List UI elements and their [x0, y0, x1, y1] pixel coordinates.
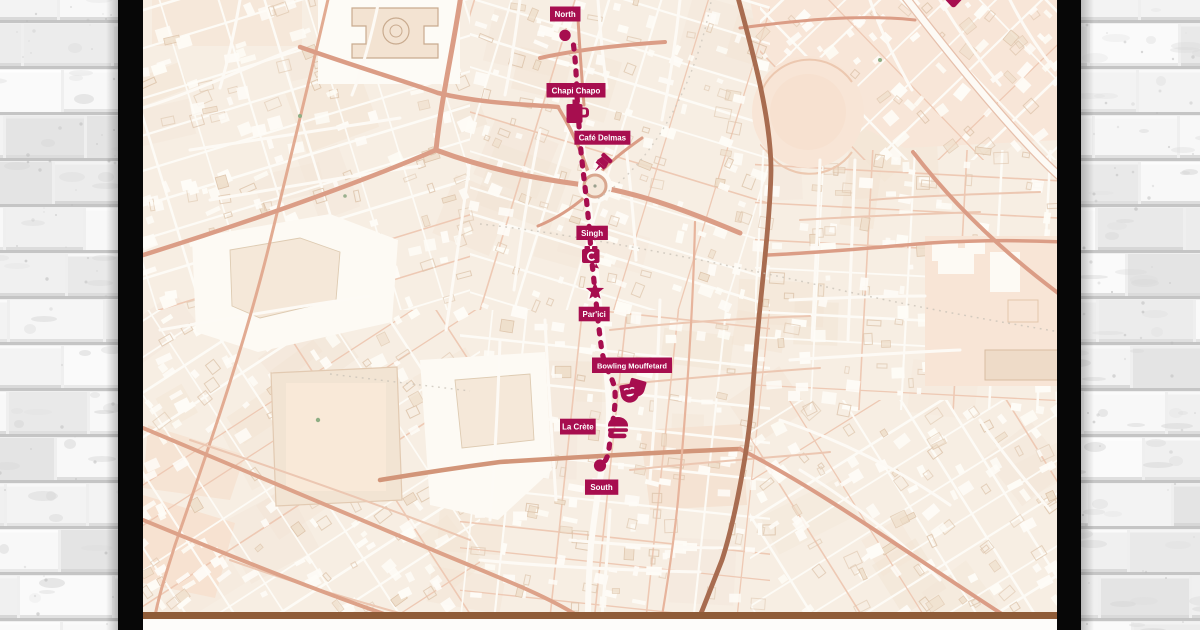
svg-text:Bowling Mouffetard: Bowling Mouffetard: [597, 361, 667, 370]
svg-text:North: North: [555, 10, 576, 19]
svg-text:Café Delmas: Café Delmas: [579, 134, 627, 143]
svg-text:Singh: Singh: [581, 229, 603, 238]
svg-text:La Crète: La Crète: [562, 423, 594, 432]
svg-text:Chapi Chapo: Chapi Chapo: [552, 86, 601, 95]
svg-text:Par'ici: Par'ici: [583, 310, 606, 319]
svg-text:South: South: [590, 483, 613, 492]
